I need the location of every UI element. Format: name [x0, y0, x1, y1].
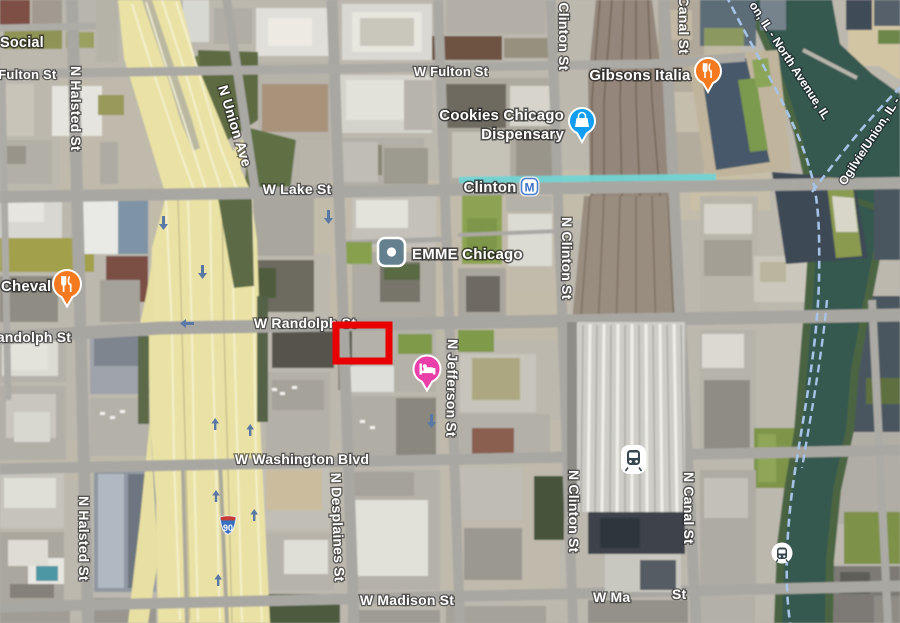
svg-text:M: M	[525, 181, 535, 195]
svg-text:Dispensary: Dispensary	[481, 126, 564, 143]
svg-text:W Lake St: W Lake St	[263, 181, 332, 197]
svg-text:W Ma: W Ma	[593, 589, 630, 605]
svg-text:N Canal St: N Canal St	[681, 472, 697, 544]
svg-text:N Halsted St: N Halsted St	[76, 496, 92, 581]
svg-text:W Madison St: W Madison St	[360, 592, 454, 608]
svg-text:W Washington Blvd: W Washington Blvd	[235, 451, 369, 467]
svg-text:Cheval: Cheval	[1, 278, 51, 295]
svg-text:W Randolph St: W Randolph St	[0, 329, 71, 345]
svg-text:N Clinton St: N Clinton St	[556, 0, 572, 71]
svg-text:N Halsted St: N Halsted St	[68, 66, 84, 151]
svg-text:Clinton: Clinton	[463, 179, 516, 196]
svg-text:N Canal St: N Canal St	[676, 0, 692, 54]
svg-text:W Fulton St: W Fulton St	[0, 67, 57, 82]
svg-text:N Clinton St: N Clinton St	[566, 470, 582, 553]
svg-text:N Jefferson St: N Jefferson St	[443, 339, 461, 437]
svg-text:90: 90	[223, 523, 233, 533]
svg-text:W Fulton St: W Fulton St	[414, 64, 489, 79]
svg-text:Gibsons Italia: Gibsons Italia	[589, 67, 691, 84]
svg-text:St: St	[672, 586, 687, 602]
svg-text:N Clinton St: N Clinton St	[559, 217, 575, 300]
svg-text:EMME Chicago: EMME Chicago	[412, 246, 523, 263]
svg-text:Social: Social	[0, 35, 44, 51]
svg-text:Cookies Chicago: Cookies Chicago	[439, 107, 564, 124]
